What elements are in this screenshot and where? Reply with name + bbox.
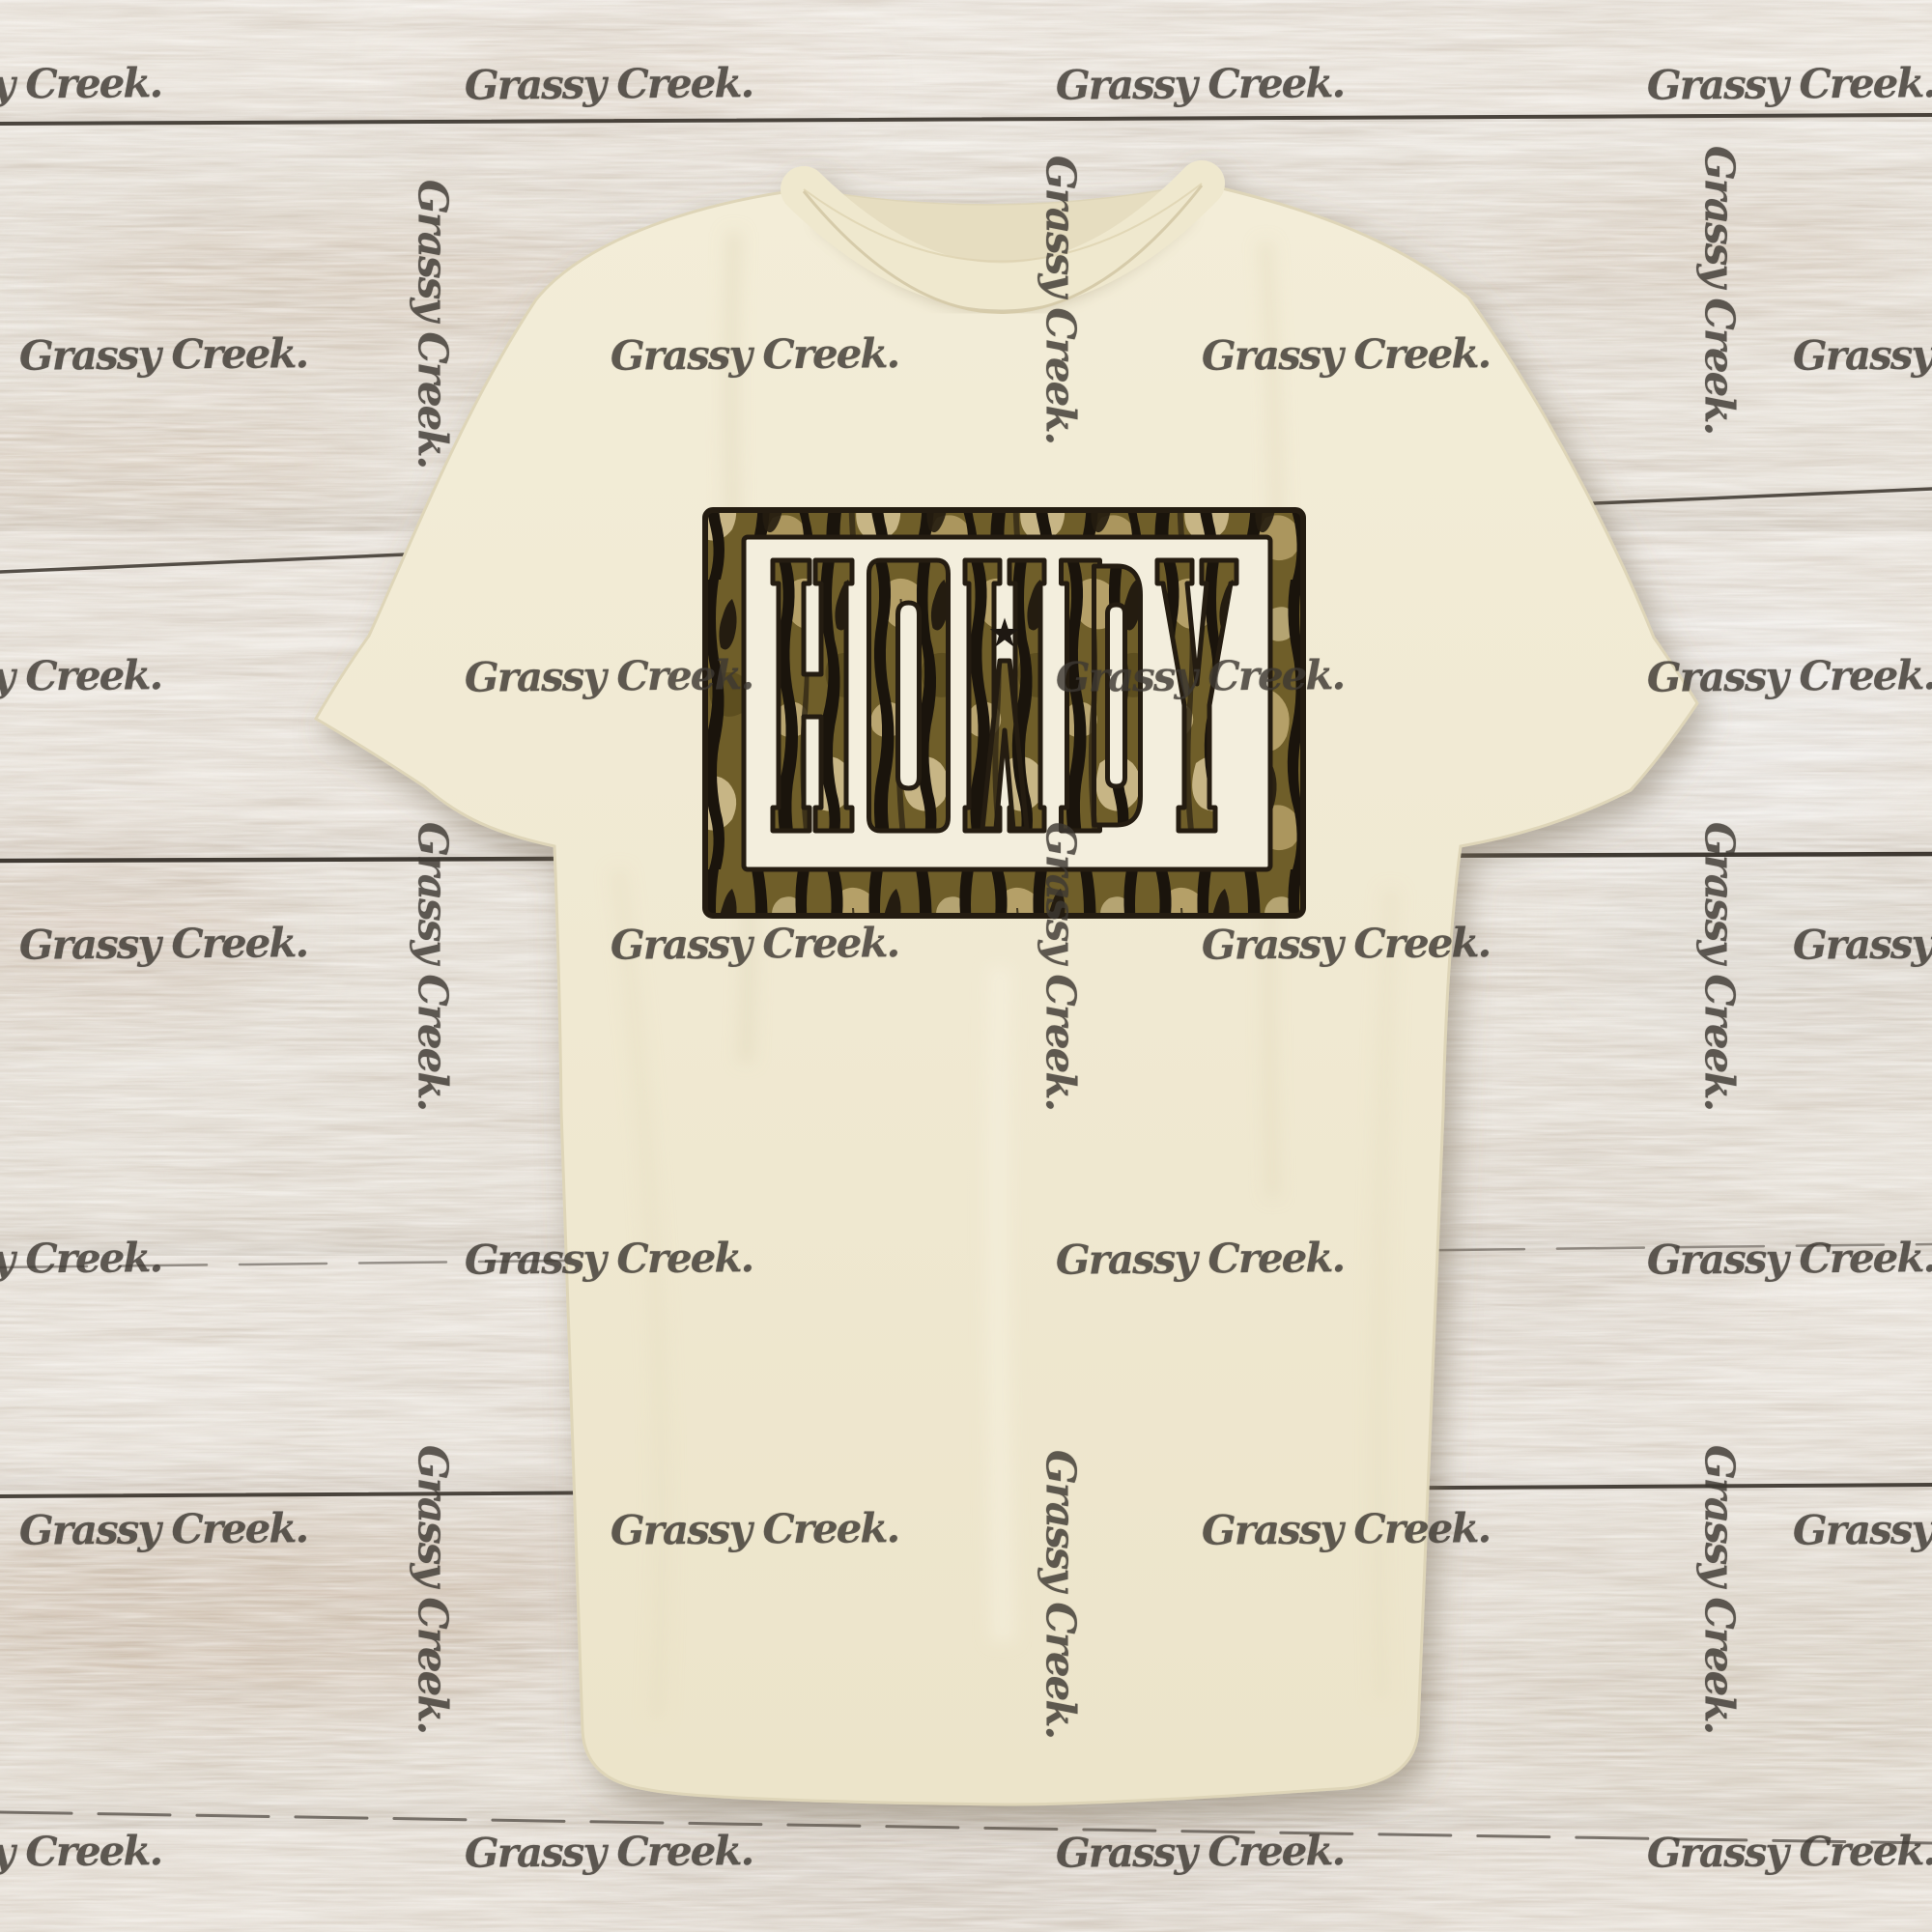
howdy-graphic	[705, 510, 1303, 916]
tshirt	[0, 0, 1932, 1932]
product-photo: Grassy Creek.Grassy Creek.Grassy Creek.G…	[0, 0, 1932, 1932]
tshirt-body-group	[316, 184, 1697, 1804]
howdy-letter-d	[1062, 560, 1141, 831]
